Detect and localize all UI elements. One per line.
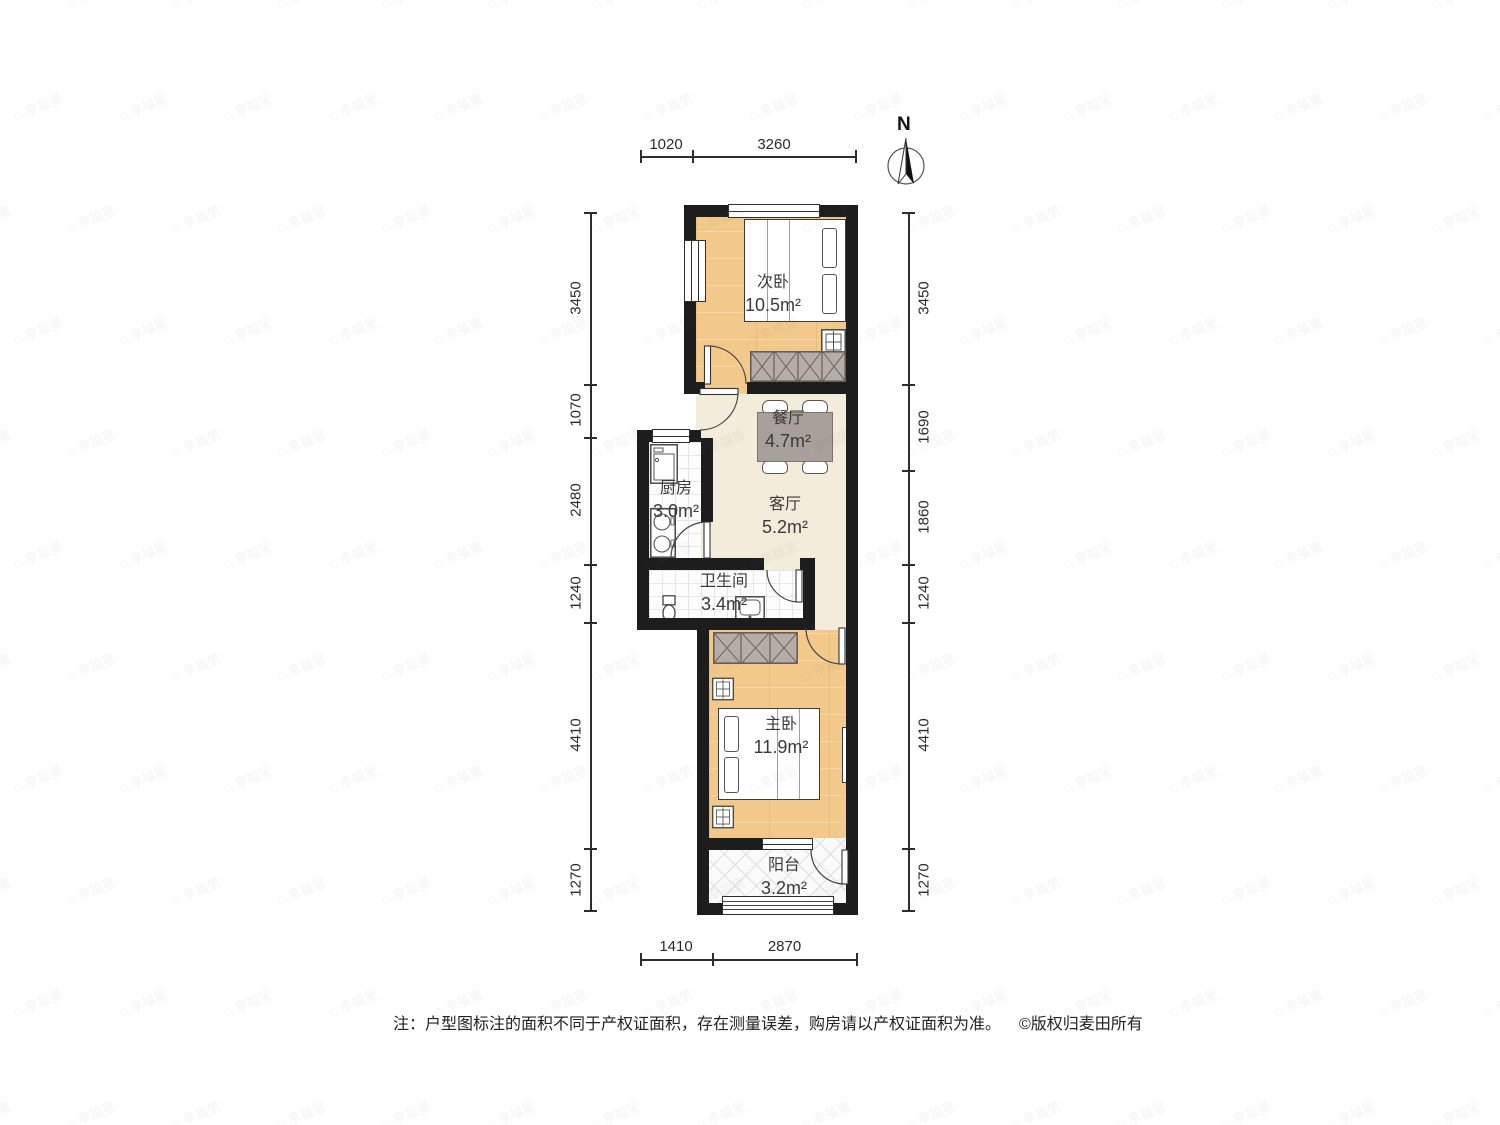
doors-layer — [0, 0, 1500, 1125]
dimension-tick — [902, 470, 915, 472]
dimension-tick — [584, 384, 597, 386]
dimension-label: 3260 — [692, 136, 856, 153]
footer-note: 注：户型图标注的面积不同于产权证面积，存在测量误差，购房请以产权证面积为准。 ©… — [393, 1010, 1143, 1034]
room-name: 主卧 — [754, 714, 809, 735]
room-area: 11.9m² — [754, 735, 809, 759]
door-leaf — [839, 628, 845, 664]
room-area: 10.5m² — [745, 293, 801, 317]
door-arc-master-bedroom — [806, 628, 842, 664]
dimension-tick — [902, 622, 915, 624]
door-leaf — [796, 570, 802, 602]
door-arc-second-bedroom — [708, 346, 746, 384]
room-name: 厨房 — [653, 478, 699, 499]
dimension-label: 1410 — [640, 938, 712, 955]
dimension-tick — [584, 564, 597, 566]
copyright-text: ©版权归麦田所有 — [1019, 1010, 1143, 1034]
dimension-tick — [902, 910, 915, 912]
dimension-line-top — [640, 156, 856, 158]
dimension-label: 1240 — [916, 576, 933, 609]
door-leaf — [705, 346, 711, 384]
dimension-label: 1070 — [568, 393, 585, 426]
dimension-label: 2480 — [568, 483, 585, 516]
room-name: 阳台 — [761, 855, 807, 876]
room-label-living: 客厅 5.2m² — [762, 494, 808, 539]
room-name: 次卧 — [745, 272, 801, 293]
dimension-label: 1270 — [568, 863, 585, 896]
dimension-line-right — [908, 212, 910, 912]
compass-icon — [880, 136, 932, 194]
room-label-balcony: 阳台 3.2m² — [761, 855, 807, 900]
dimension-label: 1020 — [640, 136, 692, 153]
dimension-label: 4410 — [916, 718, 933, 751]
room-area: 4.7m² — [765, 429, 811, 453]
dimension-label: 2870 — [712, 938, 857, 955]
dimension-label: 1240 — [568, 576, 585, 609]
dimension-tick — [584, 848, 597, 850]
room-label-second-bedroom: 次卧 10.5m² — [745, 272, 801, 317]
room-label-bathroom: 卫生间 3.4m² — [700, 571, 748, 616]
dimension-tick — [584, 212, 597, 214]
dimension-label: 1690 — [916, 410, 933, 443]
dimension-tick — [902, 564, 915, 566]
room-area: 3.2m² — [761, 876, 807, 900]
dimension-tick — [902, 384, 915, 386]
room-label-master-bedroom: 主卧 11.9m² — [754, 714, 809, 759]
dimension-label: 1860 — [916, 500, 933, 533]
dimension-tick — [902, 212, 915, 214]
compass-north-label: N — [897, 114, 911, 136]
dimension-label: 3450 — [568, 281, 585, 314]
door-arc-kitchen — [671, 522, 707, 558]
room-label-dining: 餐厅 4.7m² — [765, 408, 811, 453]
room-area: 3.0m² — [653, 499, 699, 523]
dimension-line-left — [590, 212, 592, 912]
dimension-label: 4410 — [568, 718, 585, 751]
disclaimer-text: 注：户型图标注的面积不同于产权证面积，存在测量误差，购房请以产权证面积为准。 — [393, 1010, 1001, 1034]
door-arc-bathroom — [767, 570, 799, 602]
dimension-tick — [584, 437, 597, 439]
room-name: 客厅 — [762, 494, 808, 515]
door-leaf — [704, 522, 710, 558]
dimension-tick — [584, 622, 597, 624]
room-label-kitchen: 厨房 3.0m² — [653, 478, 699, 523]
dimension-label: 1270 — [916, 863, 933, 896]
dimension-tick — [902, 848, 915, 850]
floorplan-canvas: ⌂幸福里⌂幸福里⌂幸福里⌂幸福里⌂幸福里⌂幸福里⌂幸福里⌂幸福里⌂幸福里⌂幸福里… — [0, 0, 1500, 1125]
dimension-label: 3450 — [916, 281, 933, 314]
dimension-line-bottom — [640, 959, 858, 961]
room-area: 5.2m² — [762, 515, 808, 539]
door-arc-entrance — [700, 392, 738, 430]
room-name: 餐厅 — [765, 408, 811, 429]
dimension-tick — [584, 910, 597, 912]
door-arc-balcony — [811, 850, 845, 884]
door-leaf — [700, 389, 738, 395]
room-area: 3.4m² — [700, 592, 748, 616]
room-name: 卫生间 — [700, 571, 748, 592]
door-leaf — [842, 850, 848, 884]
